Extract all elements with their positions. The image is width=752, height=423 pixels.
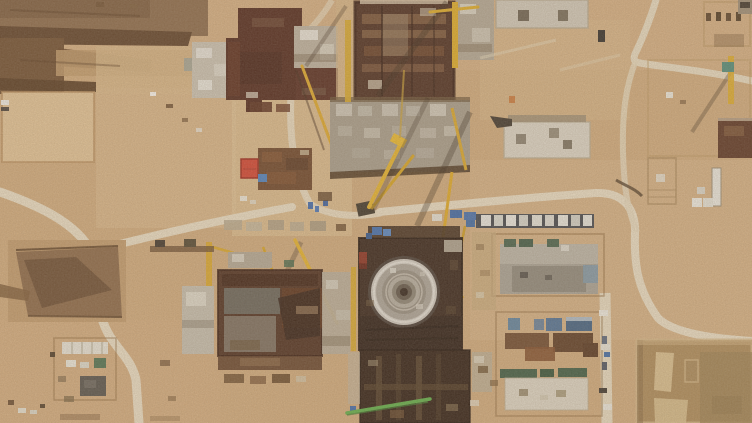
scene-svg <box>0 0 752 423</box>
satellite-image <box>0 0 752 423</box>
film-grain-light-overlay <box>0 0 752 423</box>
